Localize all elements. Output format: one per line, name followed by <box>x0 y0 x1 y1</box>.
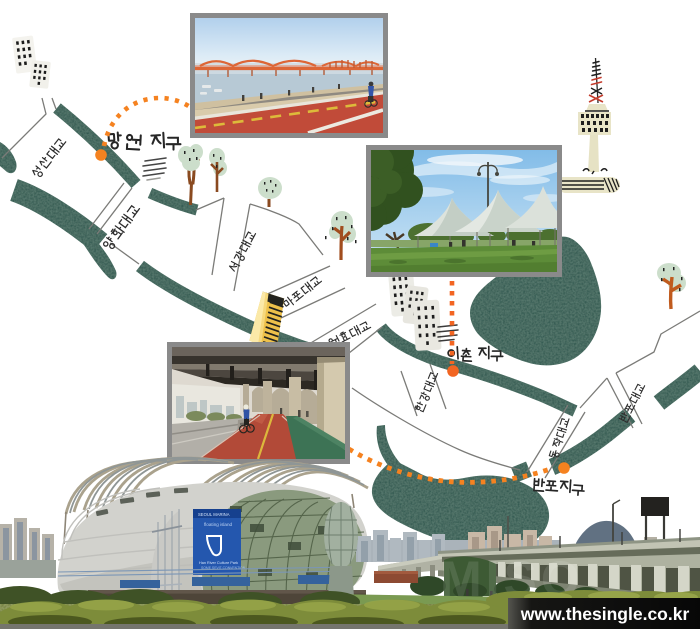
svg-text:floating island: floating island <box>204 522 233 527</box>
svg-text:Han River Culture Park: Han River Culture Park <box>199 561 238 565</box>
svg-text:SEOUL MARINA: SEOUL MARINA <box>198 512 230 517</box>
svg-text:www.thesingle.co.kr: www.thesingle.co.kr <box>520 604 690 624</box>
